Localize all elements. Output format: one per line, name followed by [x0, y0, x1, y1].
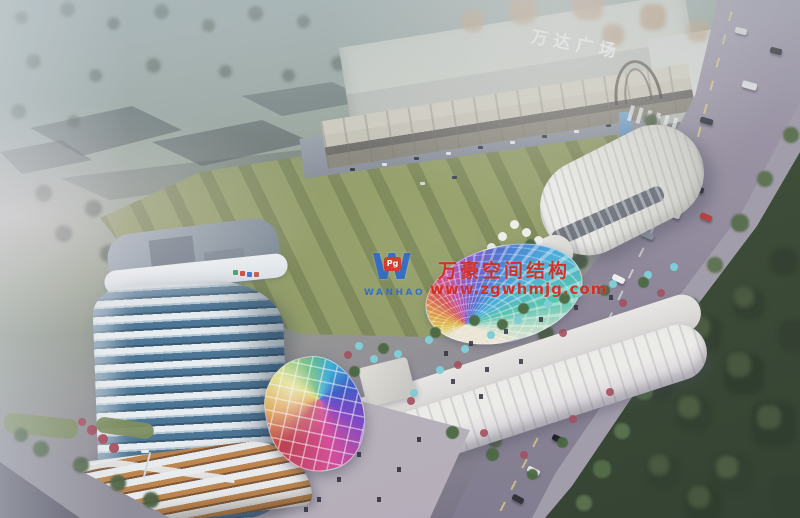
watermark-website: www.zgwhmjg.com [430, 280, 607, 298]
street-lamp-head [141, 450, 149, 453]
red-umbrellas [0, 0, 4, 4]
architectural-rendering-canvas: 万达广场 [0, 0, 800, 518]
wanhao-logo-icon: W Pg WANHAO [362, 250, 428, 308]
tower-logo [233, 270, 238, 275]
wanhao-brand-name: WANHAO [364, 288, 425, 298]
watermark: W Pg WANHAO 万豪空间结构 www.zgwhmjg.com [362, 248, 592, 312]
watermark-company: 万豪空间结构 [438, 256, 570, 283]
lawn-patch [3, 412, 79, 440]
wanhao-logo-badge: Pg [384, 257, 401, 271]
